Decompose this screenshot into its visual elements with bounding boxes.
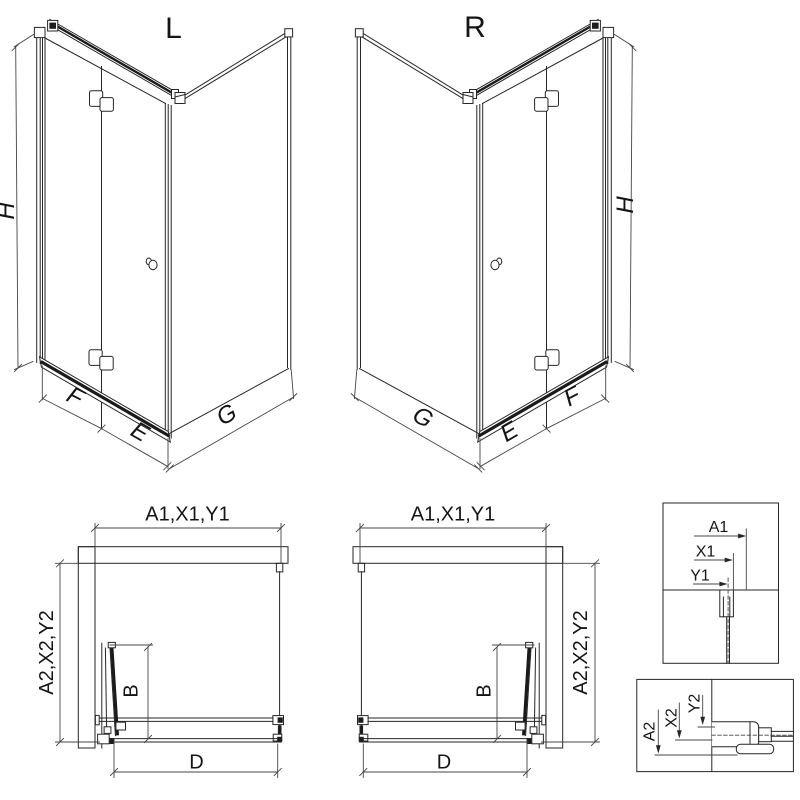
variant-label-right: R	[464, 11, 486, 44]
detail-label-x1: X1	[696, 544, 716, 561]
dim-label-b-left-plan: B	[121, 684, 143, 697]
detail-label-y2: Y2	[687, 694, 704, 714]
dim-label-f-left: F	[62, 381, 89, 412]
shower-enclosure-drawing: L R H F E G H F E G A1,X1,Y1 A2,X2,Y2 B …	[0, 0, 800, 800]
dim-label-b-right-plan: B	[474, 684, 496, 697]
labels: L R H F E G H F E G A1,X1,Y1 A2,X2,Y2 B …	[0, 11, 728, 774]
plan-view-right-geometry	[358, 563, 546, 748]
detail-inset-bottom	[637, 679, 794, 771]
dim-label-g-left: G	[212, 399, 242, 432]
detail-label-y1: Y1	[690, 568, 710, 585]
iso-view-left-geometry	[12, 20, 297, 473]
detail-label-a1: A1	[709, 519, 729, 536]
dim-label-d-left-plan: D	[189, 752, 203, 774]
dim-label-side-left-plan: A2,X2,Y2	[36, 610, 58, 695]
dim-label-top-right-plan: A1,X1,Y1	[411, 504, 496, 526]
iso-view-right-geometry	[351, 20, 636, 473]
detail-label-x2: X2	[664, 708, 681, 728]
dim-label-g-right: G	[408, 401, 438, 434]
dim-label-top-left-plan: A1,X1,Y1	[145, 504, 230, 526]
dim-label-f-right: F	[559, 381, 586, 412]
detail-label-a2: A2	[642, 722, 659, 742]
dim-label-side-right-plan: A2,X2,Y2	[570, 610, 592, 695]
dim-label-d-right-plan: D	[437, 752, 451, 774]
dim-label-h-right: H	[612, 196, 639, 214]
technical-drawing-canvas: L R H F E G H F E G A1,X1,Y1 A2,X2,Y2 B …	[0, 0, 800, 800]
plan-view-left-geometry	[95, 563, 283, 748]
plan-left-dimensions	[56, 524, 285, 778]
variant-label-left: L	[165, 12, 182, 45]
dim-label-h-left: H	[0, 202, 20, 220]
